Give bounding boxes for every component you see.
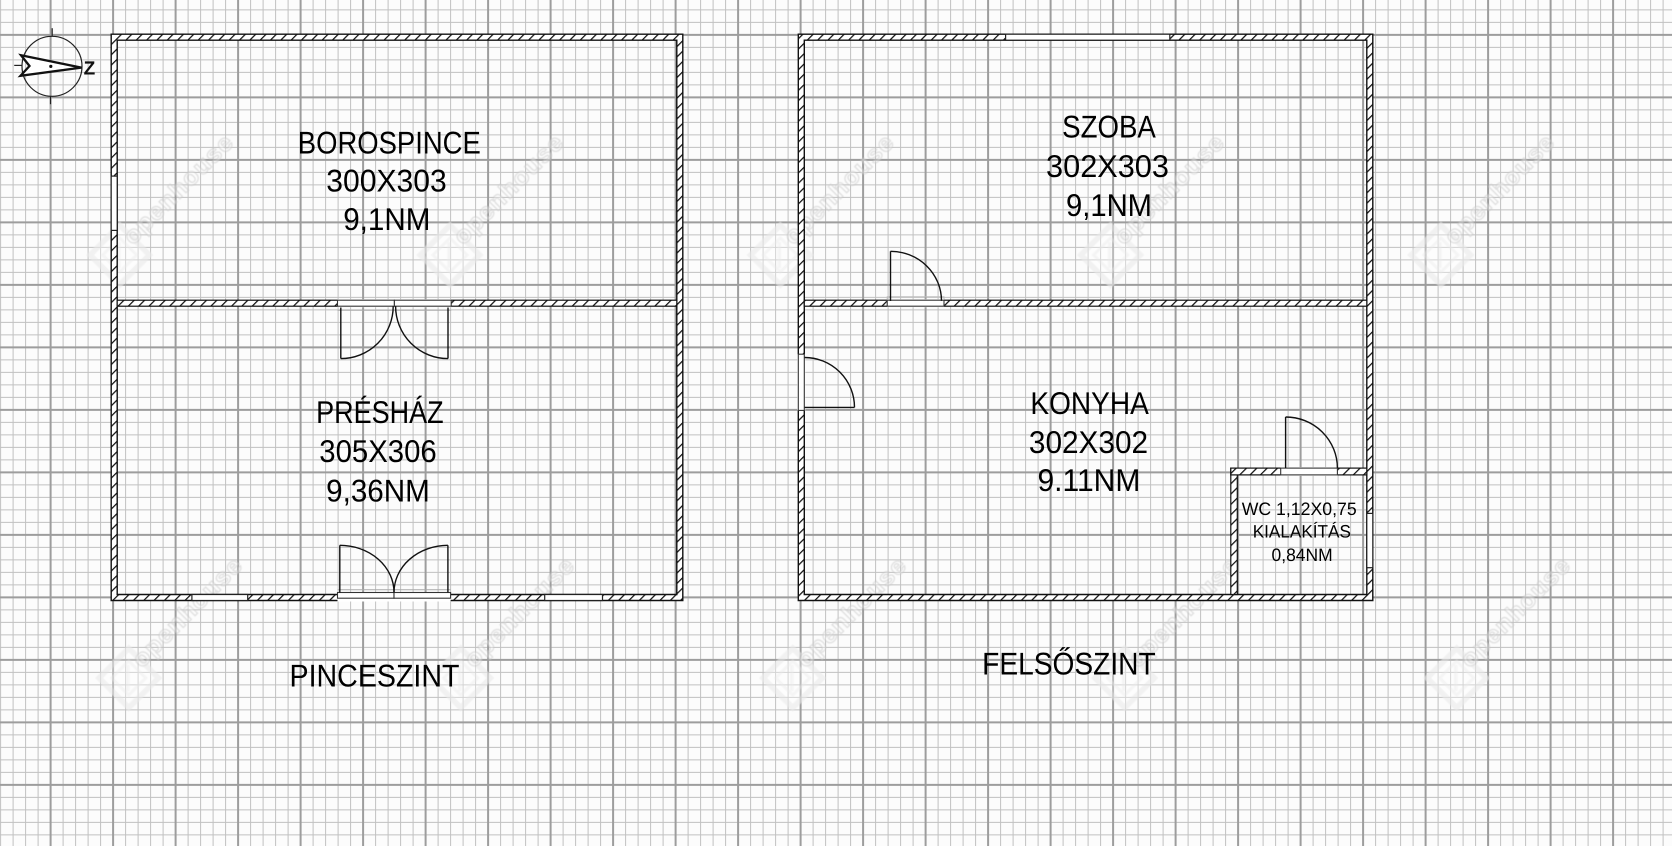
svg-text:0,84NM: 0,84NM <box>1272 545 1333 565</box>
svg-text:KIALAKÍTÁS: KIALAKÍTÁS <box>1253 522 1351 542</box>
svg-text:PINCESZINT: PINCESZINT <box>290 658 460 694</box>
svg-text:BOROSPINCE: BOROSPINCE <box>298 124 481 160</box>
svg-text:Z: Z <box>84 58 96 79</box>
svg-text:9,1NM: 9,1NM <box>343 201 430 237</box>
svg-text:302X303: 302X303 <box>1046 148 1169 184</box>
svg-text:9.11NM: 9.11NM <box>1037 462 1140 498</box>
svg-text:300X303: 300X303 <box>326 163 447 199</box>
svg-text:PRÉSHÁZ: PRÉSHÁZ <box>316 394 444 430</box>
svg-text:KONYHA: KONYHA <box>1030 385 1148 421</box>
svg-text:302X302: 302X302 <box>1029 424 1148 460</box>
svg-text:305X306: 305X306 <box>319 433 437 469</box>
svg-text:9,36NM: 9,36NM <box>326 472 430 508</box>
svg-text:WC 1,12X0,75: WC 1,12X0,75 <box>1242 499 1357 519</box>
svg-text:SZOBA: SZOBA <box>1062 109 1156 145</box>
svg-text:9,1NM: 9,1NM <box>1066 187 1152 223</box>
svg-text:FELSŐSZINT: FELSŐSZINT <box>982 645 1156 681</box>
